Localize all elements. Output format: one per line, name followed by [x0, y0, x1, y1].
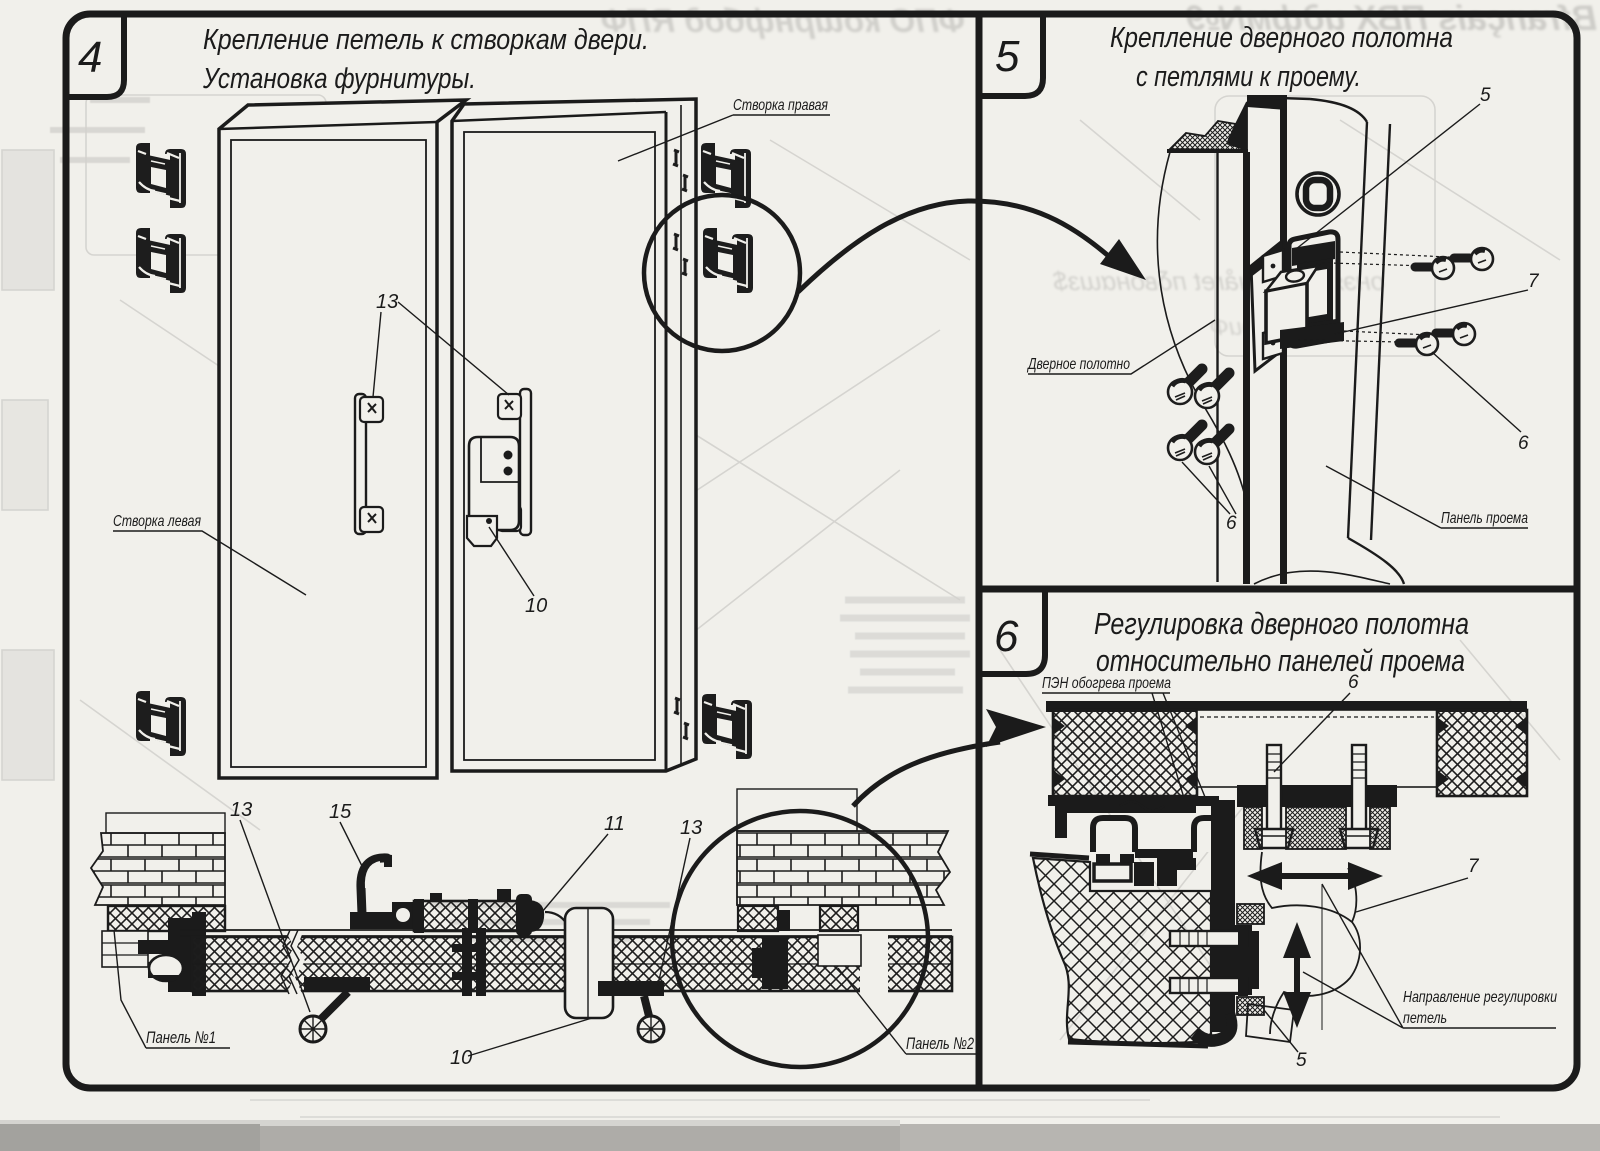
svg-text:4: 4	[78, 33, 102, 82]
svg-text:Крепление петель к створкам дв: Крепление петель к створкам двери.	[203, 24, 649, 56]
svg-text:Створка левая: Створка левая	[113, 513, 201, 530]
svg-text:15: 15	[329, 801, 352, 823]
svg-text:5: 5	[1296, 1050, 1307, 1071]
svg-text:7: 7	[1468, 856, 1480, 877]
svg-text:6: 6	[1518, 433, 1529, 454]
svg-text:13: 13	[230, 799, 252, 821]
svg-text:7: 7	[1528, 271, 1540, 292]
svg-text:Панель проема: Панель проема	[1441, 510, 1528, 527]
svg-text:10: 10	[450, 1047, 472, 1069]
svg-text:Крепление дверного полотна: Крепление дверного полотна	[1110, 22, 1453, 54]
svg-text:Створка правая: Створка правая	[733, 97, 828, 114]
svg-text:Панель №2: Панель №2	[906, 1034, 974, 1053]
svg-text:ПЭН обогрева проема: ПЭН обогрева проема	[1042, 675, 1171, 692]
svg-text:13: 13	[680, 817, 702, 839]
svg-text:10: 10	[525, 595, 547, 617]
svg-text:6: 6	[1348, 672, 1359, 693]
svg-text:6: 6	[994, 612, 1019, 661]
svg-text:6: 6	[1226, 513, 1237, 534]
svg-text:Регулировка дверного полотна: Регулировка дверного полотна	[1094, 606, 1469, 641]
svg-text:Направление регулировки: Направление регулировки	[1403, 989, 1557, 1006]
svg-text:Установка фурнитуры.: Установка фурнитуры.	[202, 63, 476, 95]
svg-text:ФПО кошрнфбод RПФ: ФПО кошрнфбод RПФ	[601, 2, 965, 39]
svg-text:5: 5	[995, 32, 1020, 81]
svg-text:Панель №1: Панель №1	[146, 1028, 216, 1047]
svg-text:петель: петель	[1403, 1010, 1447, 1027]
svg-text:13: 13	[376, 291, 398, 313]
svg-text:Дверное полотно: Дверное полотно	[1026, 356, 1130, 373]
svg-text:5: 5	[1480, 85, 1491, 106]
svg-text:11: 11	[604, 813, 625, 835]
svg-text:относительно панелей проема: относительно панелей проема	[1096, 643, 1465, 678]
svg-text:с петлями к проему.: с петлями к проему.	[1136, 61, 1361, 93]
